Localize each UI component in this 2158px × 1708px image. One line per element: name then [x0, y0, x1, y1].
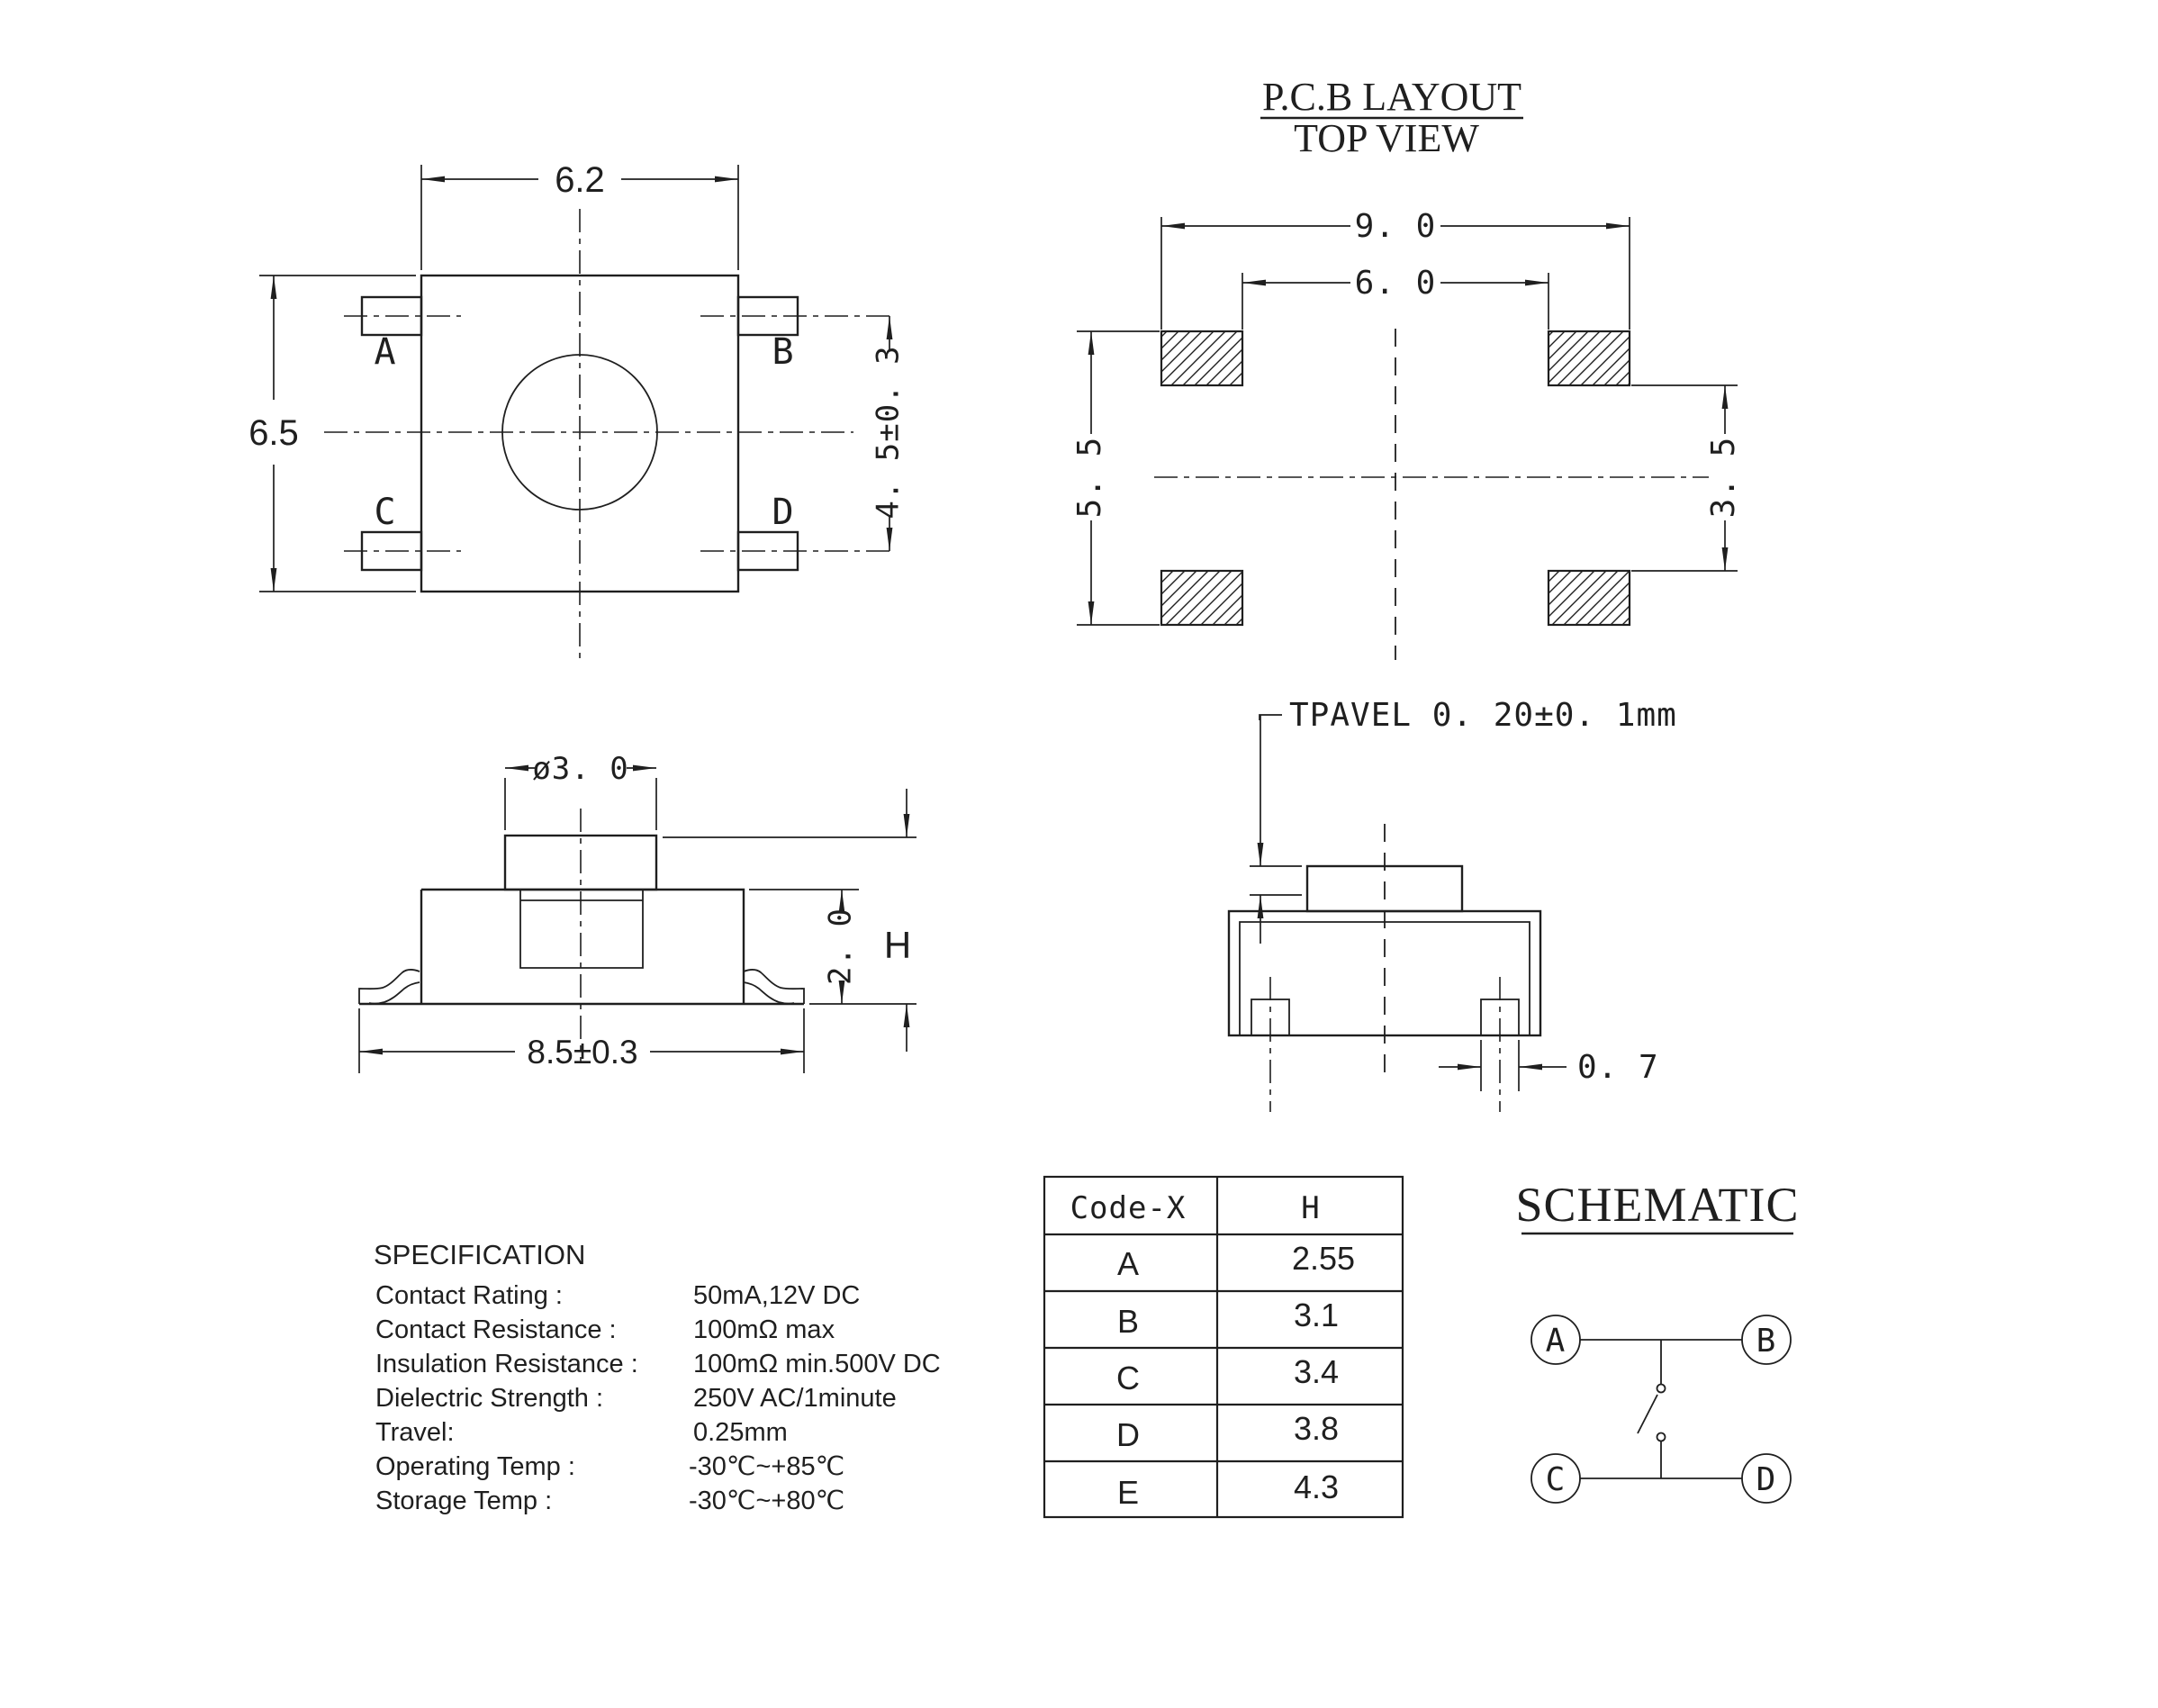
pin-a-label: A [374, 331, 396, 373]
terminal-d-label: D [1756, 1461, 1777, 1498]
dim-left-height-label: 5. 5 [1071, 437, 1108, 519]
dim-foot-width-label: 8.5±0.3 [527, 1034, 637, 1071]
pin-c-label: C [374, 492, 396, 533]
spec-value: 100mΩ max [693, 1315, 835, 1344]
table-header-code: Code-X [1070, 1190, 1187, 1226]
spec-value: -30℃~+85℃ [689, 1452, 844, 1481]
spec-value: 250V AC/1minute [693, 1384, 897, 1413]
table-cell-h: 3.1 [1294, 1297, 1339, 1333]
travel-side-view: TPAVEL 0. 20±0. 1mm 0. 7 [1229, 697, 1677, 1112]
dim-width-label: 6.2 [555, 160, 605, 200]
table-cell-code: A [1117, 1245, 1139, 1282]
dim-outer-width-label: 9. 0 [1355, 208, 1437, 245]
dim-total-height-label: H [884, 924, 911, 966]
inner-cup [520, 890, 643, 968]
table-header-h: H [1301, 1190, 1320, 1226]
spec-label: Insulation Resistance : [375, 1350, 638, 1378]
pcb-layout-subtitle: TOP VIEW [1294, 116, 1479, 160]
switch-contact-lower [1657, 1433, 1666, 1441]
spec-label: Dielectric Strength : [375, 1384, 603, 1413]
spec-value: -30℃~+80℃ [689, 1487, 844, 1515]
spec-value: 0.25mm [693, 1418, 788, 1447]
pin-d-label: D [772, 492, 794, 533]
pcb-layout-title: P.C.B LAYOUT [1262, 75, 1521, 119]
terminal-c-label: C [1546, 1461, 1567, 1498]
pcb-pad-bottom-left [1161, 571, 1242, 625]
travel-note-label: TPAVEL 0. 20±0. 1mm [1289, 697, 1677, 734]
pcb-layout-view: P.C.B LAYOUT TOP VIEW 9. 0 6. 0 5. 5 [1071, 75, 1742, 660]
switch-side-view: ø3. 0 8.5±0.3 2. 0 H [359, 751, 916, 1073]
schematic-drawing: SCHEMATIC A B C D [1515, 1178, 1799, 1503]
right-lead-upper [744, 970, 804, 1004]
spec-value: 100mΩ min.500V DC [693, 1350, 941, 1378]
dim-body-height-label: 2. 0 [823, 908, 859, 985]
terminal-a-label: A [1546, 1323, 1567, 1360]
leader-elbow [1260, 715, 1282, 720]
right-lead-lower [744, 982, 794, 1004]
pcb-pad-bottom-right [1549, 571, 1630, 625]
left-lead-upper [359, 970, 420, 1004]
drawing-sheet: A B C D 6.2 6.5 4. 5±0. 3 P.C.B LAYOUT T… [0, 0, 2158, 1708]
table-cell-h: 3.4 [1294, 1353, 1339, 1390]
pcb-pad-top-right [1549, 331, 1630, 385]
dim-height-label: 6.5 [248, 413, 299, 453]
left-lead-lower [369, 982, 420, 1004]
pin-b-label: B [772, 331, 794, 373]
specification-block: SPECIFICATION Contact Rating : 50mA,12V … [374, 1239, 941, 1515]
table-cell-h: 2.55 [1292, 1240, 1355, 1277]
switch-top-view: A B C D 6.2 6.5 4. 5±0. 3 [248, 160, 906, 664]
spec-label: Contact Resistance : [375, 1315, 617, 1344]
terminal-b-label: B [1756, 1323, 1777, 1360]
table-cell-code: D [1116, 1416, 1140, 1453]
table-cell-code: E [1117, 1474, 1139, 1511]
spec-label: Contact Rating : [375, 1281, 563, 1310]
dim-foot-label: 0. 7 [1577, 1049, 1659, 1086]
spec-label: Operating Temp : [375, 1452, 575, 1481]
table-cell-h: 4.3 [1294, 1469, 1339, 1505]
switch-blade [1638, 1395, 1657, 1433]
table-cell-h: 3.8 [1294, 1410, 1339, 1447]
spec-value: 50mA,12V DC [693, 1281, 860, 1310]
dim-pin-span-label: 4. 5±0. 3 [871, 345, 907, 519]
code-height-table: Code-X H A 2.55 B 3.1 C 3.4 D 3.8 E 4.3 [1044, 1177, 1403, 1517]
schematic-title: SCHEMATIC [1515, 1178, 1799, 1232]
dim-inner-width-label: 6. 0 [1355, 265, 1437, 302]
spec-label: Travel: [375, 1418, 455, 1447]
body-sides [421, 890, 744, 971]
switch-contact-upper [1657, 1385, 1666, 1393]
table-cell-code: B [1117, 1303, 1139, 1340]
dim-button-dia-label: ø3. 0 [532, 751, 628, 787]
pcb-pad-top-left [1161, 331, 1242, 385]
table-cell-code: C [1116, 1360, 1140, 1396]
specification-title: SPECIFICATION [374, 1239, 585, 1270]
dim-right-height-label: 3. 5 [1705, 437, 1742, 519]
spec-label: Storage Temp : [375, 1487, 552, 1515]
